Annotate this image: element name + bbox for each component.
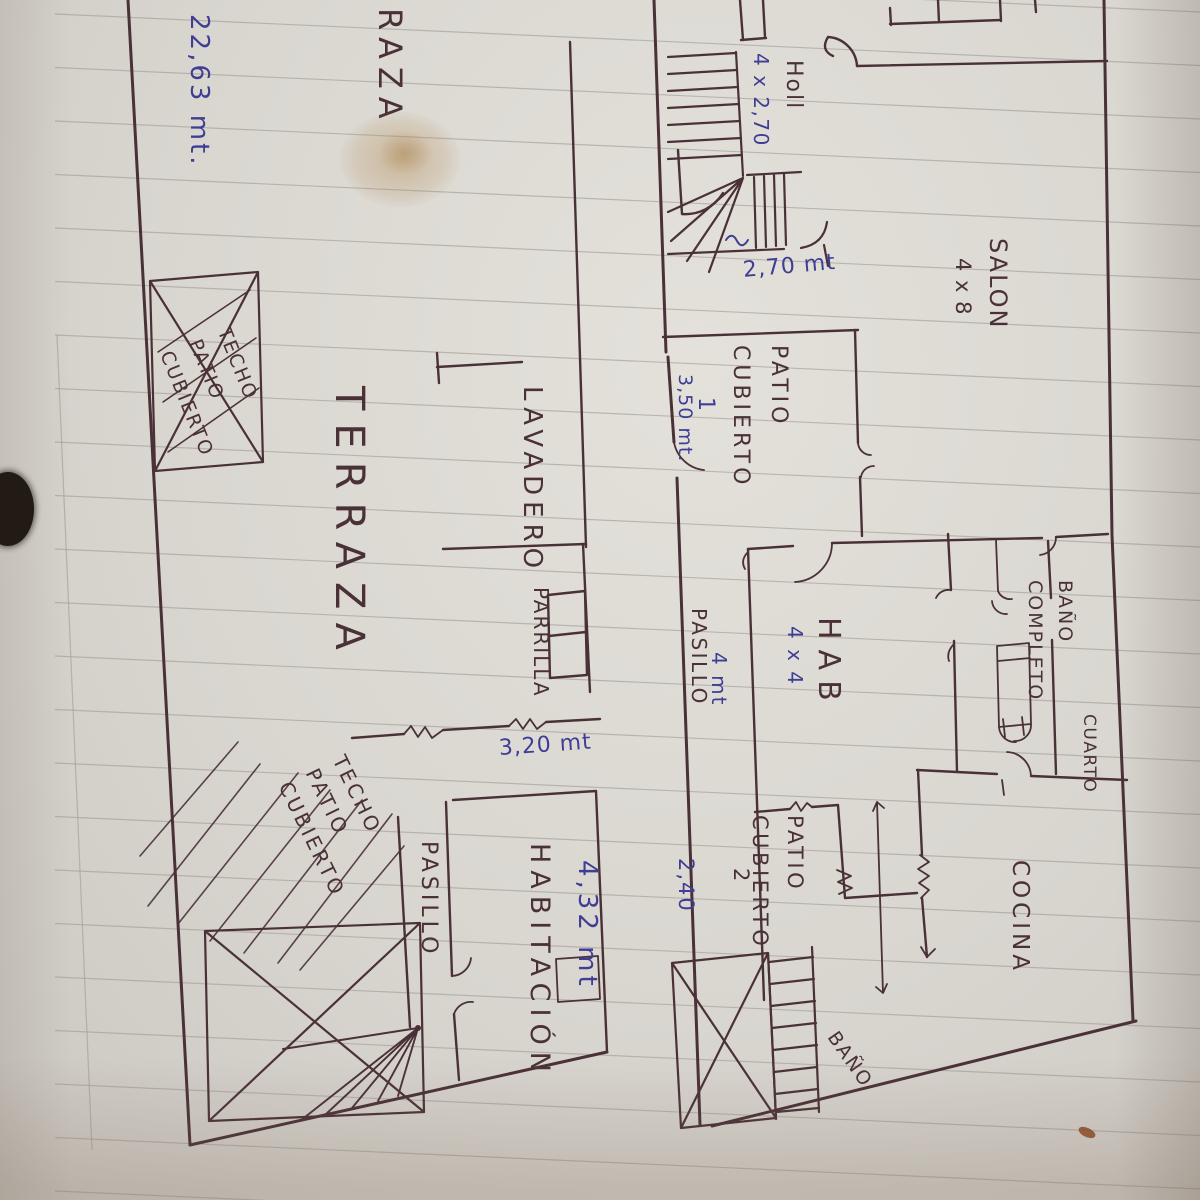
label-pasillo-bottom: PASILLO (416, 841, 441, 957)
blue-tilde-mark (726, 236, 748, 246)
dimension-line (873, 802, 887, 993)
walls-outer (128, 0, 1136, 1145)
walls-lavadero-parrilla (352, 42, 600, 738)
ruled-line (55, 14, 1200, 66)
label-patio-cubierto-1-num: 1 (693, 397, 718, 411)
label-bano-completo: BAÑO COMPLETO (1020, 580, 1080, 701)
label-cocina: COCINA (1007, 860, 1033, 974)
door-arc-icon (743, 537, 1056, 582)
notebook-paper: 22,63 mt. TERRAZA TECHO PATIO CUBIERTO T… (0, 0, 1200, 1200)
photo-of-floor-plan: { "colors": { "ink": "#4a3137", "blue": … (0, 0, 1200, 1200)
window-zigzag-icon (918, 855, 929, 898)
dim-pasillo-right: 4 mt (707, 652, 730, 706)
ruled-line (55, 67, 1200, 119)
dim-total-length: 22,63 mt. (183, 14, 213, 167)
crossed-box-icon (672, 953, 776, 1128)
ruled-line (55, 442, 1200, 494)
dim-patio-cubierto-1: 3,50 mt. (673, 374, 695, 462)
dim-salon: 4 x 8 (951, 258, 975, 316)
dim-hab: 4 x 4 (783, 626, 806, 686)
ruled-line (55, 1191, 1200, 1200)
label-patio-cubierto-2-num: 2 (729, 868, 753, 881)
label-holl: Holl (781, 60, 806, 110)
walls-top-stubs (740, 0, 1107, 66)
window-zigzag-icon (404, 726, 443, 738)
dim-holl: 4 x 2,70 (749, 53, 772, 147)
ruled-line (55, 1084, 1200, 1136)
window-zigzag-icon (790, 802, 812, 811)
door-arc-icon (452, 958, 473, 1014)
label-patio-cubierto-1: PATIO CUBIERTO (721, 345, 797, 488)
label-parrilla: PARRILLA (529, 587, 552, 698)
label-habitacion: HABITACIÓN (524, 843, 555, 1079)
door-arc-icon (1002, 752, 1031, 795)
label-hab: HAB (811, 617, 846, 711)
label-terraza-main: TERRAZA (326, 386, 372, 663)
label-terraza-top: TERRAZA (371, 0, 408, 127)
dim-habitacion: 4,32 mt (571, 860, 601, 990)
label-salon: SALON (983, 238, 1011, 329)
ruled-line (55, 1030, 1200, 1082)
ruled-line (55, 977, 1200, 1029)
ruled-line (55, 228, 1200, 280)
ruled-line (55, 281, 1200, 333)
dim-patio-cubierto-2: 2,40 (674, 858, 698, 913)
ruled-line (55, 174, 1200, 226)
window-zigzag-icon (509, 719, 546, 729)
ruled-line (55, 121, 1200, 173)
label-lavadero: LAVADERO (516, 386, 546, 574)
ruled-line (55, 1137, 1200, 1189)
ruled-line (55, 0, 1200, 12)
label-patio-cubierto-2: PATIO CUBIERTO (742, 815, 812, 949)
margin-line (57, 335, 92, 1150)
label-cuarto: CUARTO (1078, 714, 1098, 793)
